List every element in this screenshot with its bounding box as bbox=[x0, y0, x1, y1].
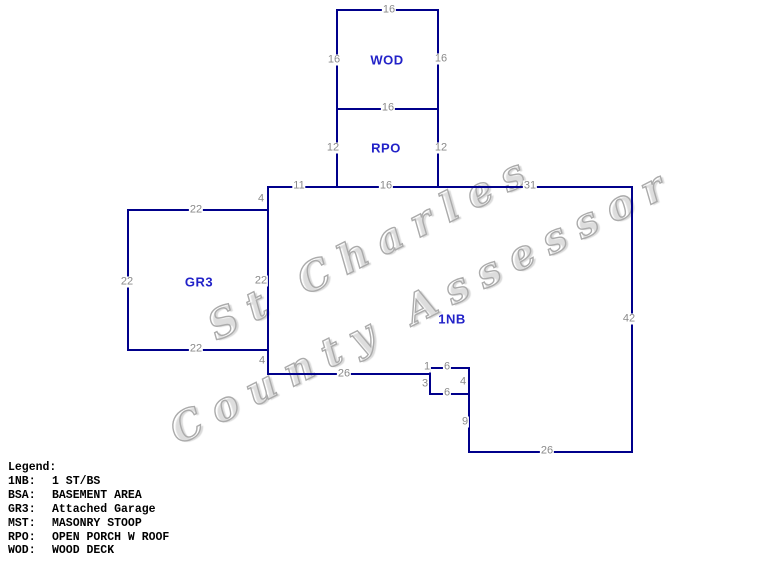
legend-row: 1NB:1 ST/BS bbox=[8, 475, 169, 489]
dim-label: 22 bbox=[120, 277, 134, 288]
legend-desc: 1 ST/BS bbox=[52, 475, 100, 488]
legend-abbr: GR3: bbox=[8, 503, 52, 517]
legend-abbr: WOD: bbox=[8, 544, 52, 558]
dim-label: 26 bbox=[337, 369, 351, 380]
legend-desc: OPEN PORCH W ROOF bbox=[52, 531, 169, 544]
legend-row: GR3:Attached Garage bbox=[8, 503, 169, 517]
legend-row: RPO:OPEN PORCH W ROOF bbox=[8, 531, 169, 545]
legend-row: WOD:WOOD DECK bbox=[8, 544, 169, 558]
dim-label: 12 bbox=[434, 143, 448, 154]
legend-row: MST:MASONRY STOOP bbox=[8, 517, 169, 531]
legend-desc: WOOD DECK bbox=[52, 544, 114, 557]
dim-label: 4 bbox=[459, 377, 467, 388]
legend-desc: MASONRY STOOP bbox=[52, 517, 142, 530]
dim-label: 1 bbox=[423, 362, 431, 373]
legend-row: BSA:BASEMENT AREA bbox=[8, 489, 169, 503]
area-label-open-porch: RPO bbox=[371, 141, 401, 156]
dim-label: 6 bbox=[443, 388, 451, 399]
dim-label: 16 bbox=[434, 54, 448, 65]
dim-label: 6 bbox=[443, 362, 451, 373]
area-label-garage: GR3 bbox=[185, 275, 213, 290]
legend-desc: BASEMENT AREA bbox=[52, 489, 142, 502]
legend-abbr: MST: bbox=[8, 517, 52, 531]
legend-abbr: 1NB: bbox=[8, 475, 52, 489]
dim-label: 4 bbox=[257, 194, 265, 205]
dim-label: 16 bbox=[382, 5, 396, 16]
dim-label: 31 bbox=[523, 181, 537, 192]
legend-abbr: RPO: bbox=[8, 531, 52, 545]
dim-label: 16 bbox=[327, 55, 341, 66]
dim-label: 4 bbox=[258, 356, 266, 367]
dim-label: 26 bbox=[540, 446, 554, 457]
dim-label: 42 bbox=[622, 314, 636, 325]
legend-title: Legend: bbox=[8, 461, 169, 475]
assessor-sketch-canvas: St Charles County Assessor 16 16 16 16 1… bbox=[0, 0, 762, 573]
dim-label: 3 bbox=[421, 379, 429, 390]
legend-desc: Attached Garage bbox=[52, 503, 156, 516]
dim-label: 22 bbox=[189, 344, 203, 355]
dim-label: 22 bbox=[189, 205, 203, 216]
legend-abbr: BSA: bbox=[8, 489, 52, 503]
dim-label: 12 bbox=[326, 143, 340, 154]
legend: Legend: 1NB:1 ST/BS BSA:BASEMENT AREA GR… bbox=[8, 461, 169, 558]
dim-label: 16 bbox=[379, 181, 393, 192]
area-label-main-area: 1NB bbox=[438, 312, 466, 327]
dim-label: 16 bbox=[381, 103, 395, 114]
dim-label: 11 bbox=[292, 181, 305, 192]
area-label-wood-deck: WOD bbox=[370, 53, 403, 68]
dim-label: 22 bbox=[254, 276, 268, 287]
dim-label: 9 bbox=[461, 417, 469, 428]
